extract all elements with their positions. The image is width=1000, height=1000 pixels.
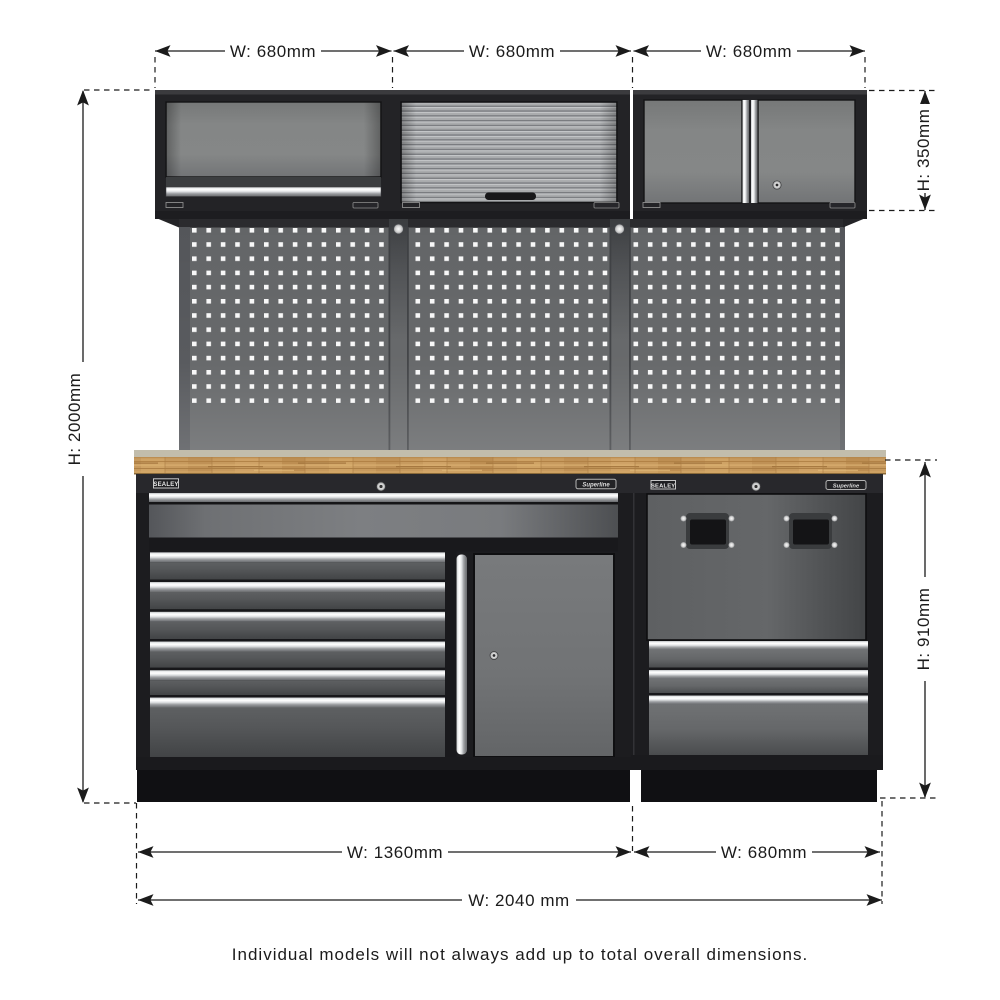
svg-text:W: 680mm: W: 680mm: [721, 843, 807, 862]
svg-text:W: 1360mm: W: 1360mm: [347, 843, 443, 862]
svg-text:H: 350mm: H: 350mm: [914, 109, 933, 192]
svg-text:W: 680mm: W: 680mm: [230, 42, 316, 61]
svg-text:Individual models will not alw: Individual models will not always add up…: [232, 945, 808, 964]
svg-text:H: 910mm: H: 910mm: [914, 588, 933, 671]
svg-text:SEALEY: SEALEY: [153, 482, 178, 488]
svg-text:Superline: Superline: [582, 483, 610, 489]
svg-text:Superline: Superline: [833, 484, 860, 490]
svg-text:H: 2000mm: H: 2000mm: [65, 373, 84, 466]
svg-text:SEALEY: SEALEY: [651, 483, 675, 489]
svg-text:W: 2040 mm: W: 2040 mm: [468, 891, 570, 910]
svg-text:W: 680mm: W: 680mm: [706, 42, 792, 61]
svg-text:W: 680mm: W: 680mm: [469, 42, 555, 61]
